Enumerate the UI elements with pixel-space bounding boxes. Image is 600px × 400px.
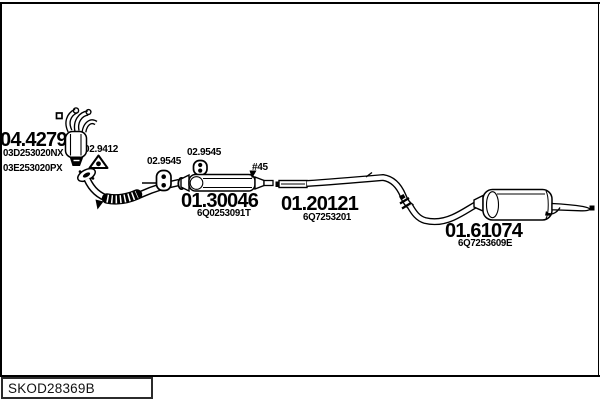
part-code-hanger-mid[interactable]: 02.9545 xyxy=(187,148,221,158)
frame-right-line xyxy=(598,2,600,376)
down-pipe-drawing xyxy=(87,178,185,210)
rear-pipe-drawing xyxy=(410,203,479,222)
fitting-mark-45[interactable]: #45 xyxy=(252,163,268,173)
part-code-gasket[interactable]: 02.9412 xyxy=(84,145,118,155)
oem-number-centre-pipe: 6Q7253201 xyxy=(303,212,351,223)
frame-left-line xyxy=(0,2,2,376)
part-code-hanger-front[interactable]: 02.9545 xyxy=(147,157,181,167)
oem-number-rear-silencer: 6Q7253609E xyxy=(458,238,512,249)
oem-number-catalytic-1: 03D253020NX xyxy=(3,148,63,159)
catalytic-converter-drawing xyxy=(66,132,98,185)
rubber-hanger-icon-front xyxy=(157,171,172,191)
oem-number-catalytic-2: 03E253020PX xyxy=(3,163,62,174)
mount-square-icon xyxy=(57,113,63,119)
pipe-clamp-drawing xyxy=(399,194,411,209)
exhaust-parts-diagram: 04.4279 03D253020NX 03E253020PX 02.9412 … xyxy=(0,0,600,400)
manifold-drawing xyxy=(68,108,96,132)
drawing-code: SKOD28369B xyxy=(3,381,95,396)
rear-silencer-drawing xyxy=(474,190,595,221)
frame-top-line xyxy=(0,2,600,4)
middle-silencer-drawing xyxy=(181,175,273,192)
triangle-gasket-icon xyxy=(90,156,108,169)
drawing-code-box: SKOD28369B xyxy=(1,377,153,399)
rubber-hanger-icon-mid xyxy=(194,161,208,176)
oem-number-middle-silencer: 6Q0253091T xyxy=(197,208,251,219)
